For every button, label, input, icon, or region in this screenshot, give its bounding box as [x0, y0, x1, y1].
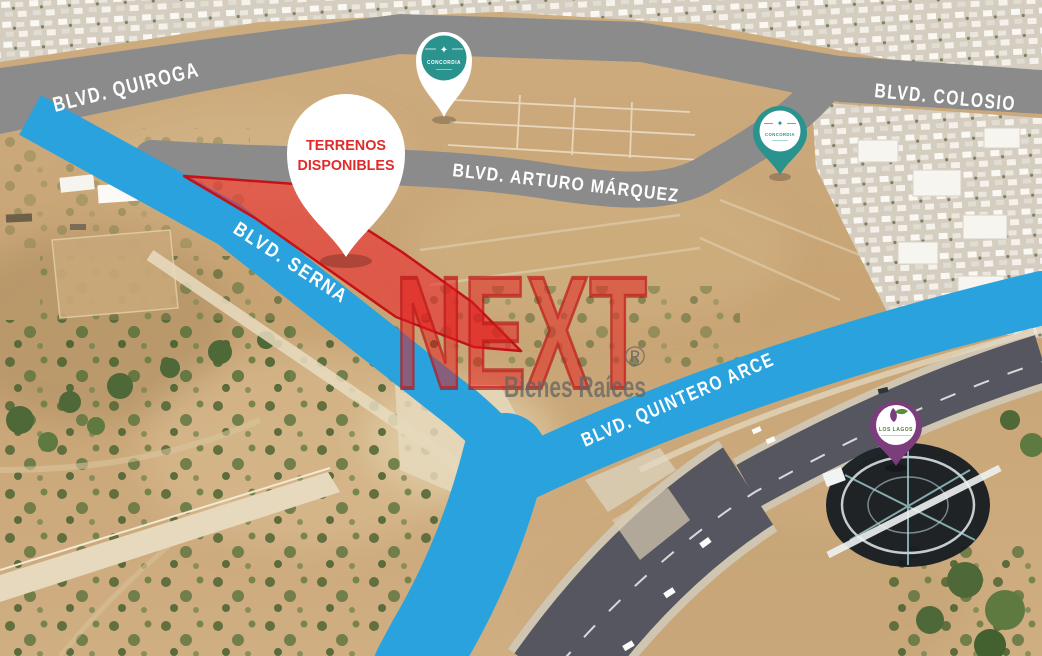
los-lagos-pin-disc [876, 405, 916, 445]
concordia-east-label: CONCORDIA [765, 132, 795, 138]
compass-ornament-icon: ✦ [440, 45, 448, 56]
availability-pin-line1: TERRENOS [306, 137, 386, 154]
availability-pin-line2: DISPONIBLES [298, 157, 395, 174]
compass-ornament-icon: ✦ [777, 119, 784, 128]
aerial-map: BLVD. QUIROGA BLVD. COLOSIO BLVD. ARTURO… [0, 0, 1042, 656]
concordia-east-pin-disc [760, 111, 801, 152]
concordia-north-label: CONCORDIA [427, 60, 461, 66]
concordia-north-pin-disc [422, 36, 467, 81]
los-lagos-label: LOS LAGOS [879, 427, 913, 433]
watermark: NEXT ® Bienes Raíces [395, 243, 647, 422]
watermark-tagline: Bienes Raíces [504, 371, 646, 404]
watermark-registered-icon: ® [625, 341, 646, 372]
